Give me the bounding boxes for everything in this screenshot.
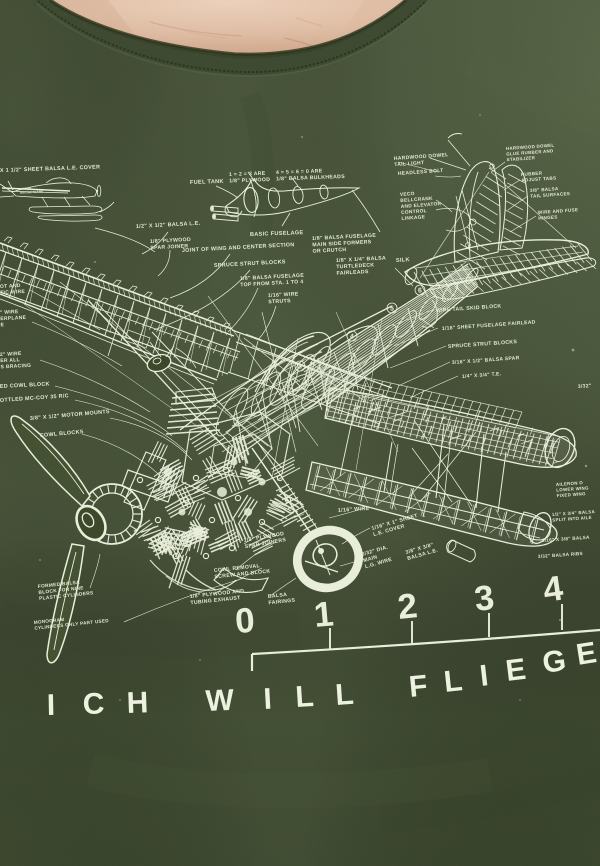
svg-text:L: L bbox=[294, 680, 314, 714]
svg-text:I: I bbox=[47, 689, 56, 722]
svg-text:5: 5 bbox=[390, 305, 394, 312]
svg-text:I: I bbox=[263, 683, 273, 716]
svg-text:VECO: VECO bbox=[400, 191, 415, 198]
svg-text:FUEL TANK: FUEL TANK bbox=[190, 179, 224, 186]
svg-text:F: F bbox=[408, 669, 429, 704]
svg-text:L: L bbox=[442, 664, 464, 699]
svg-text:G: G bbox=[540, 644, 568, 680]
svg-text:E: E bbox=[504, 653, 528, 688]
svg-text:L: L bbox=[334, 678, 355, 712]
svg-text:3/32": 3/32" bbox=[578, 383, 592, 390]
svg-text:6: 6 bbox=[418, 287, 422, 294]
svg-text:SILK: SILK bbox=[396, 257, 410, 264]
svg-text:C: C bbox=[82, 687, 105, 721]
svg-text:H: H bbox=[126, 686, 149, 720]
svg-text:1: 1 bbox=[312, 594, 335, 635]
svg-text:W: W bbox=[205, 684, 235, 718]
svg-text:STRUTS: STRUTS bbox=[268, 298, 291, 305]
svg-text:0: 0 bbox=[234, 601, 256, 641]
svg-text:3: 3 bbox=[298, 363, 302, 370]
svg-text:2: 2 bbox=[396, 586, 419, 627]
svg-text:E: E bbox=[0, 322, 4, 328]
svg-text:4: 4 bbox=[350, 333, 354, 340]
